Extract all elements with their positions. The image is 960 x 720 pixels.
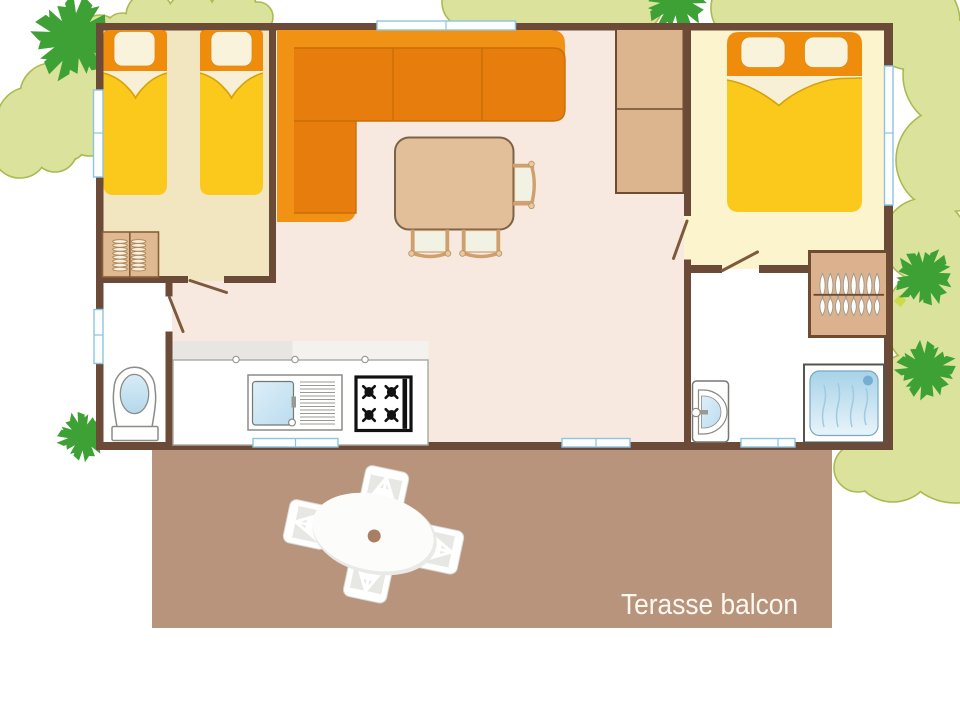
svg-text:Terasse balcon: Terasse balcon [621,589,798,621]
